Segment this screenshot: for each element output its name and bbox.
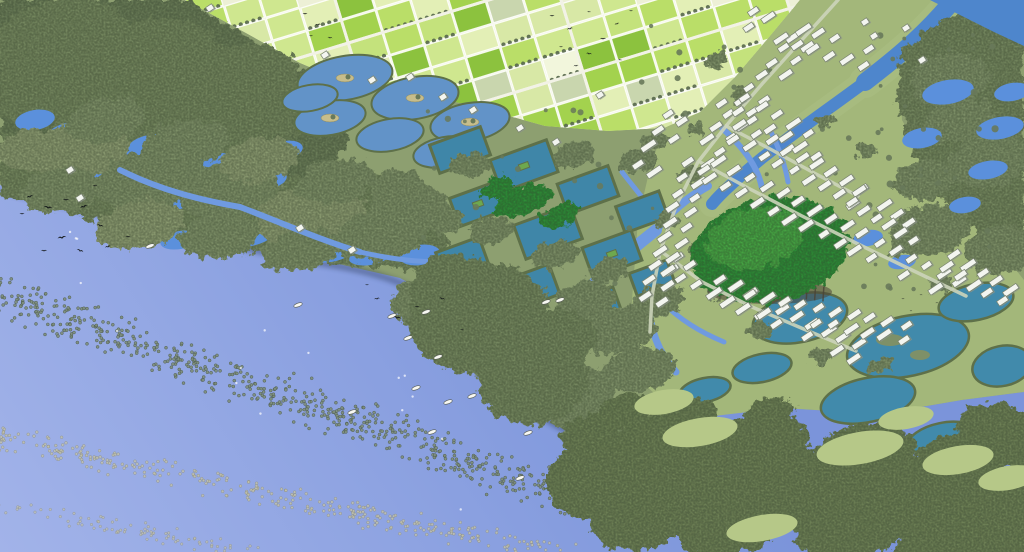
aquaculture-dot bbox=[458, 528, 461, 531]
aquaculture-dot bbox=[102, 339, 105, 342]
aquaculture-dot bbox=[231, 373, 234, 376]
aquaculture-dot bbox=[511, 483, 514, 486]
aquaculture-dot bbox=[2, 304, 5, 307]
aquaculture-dot bbox=[364, 513, 367, 516]
aquaculture-dot bbox=[27, 313, 30, 316]
aquaculture-dot bbox=[376, 405, 379, 408]
aquaculture-dot bbox=[114, 340, 117, 343]
aquaculture-dot bbox=[0, 277, 2, 280]
aquaculture-dot bbox=[398, 429, 401, 432]
aquaculture-dot bbox=[243, 375, 246, 378]
aquaculture-dot bbox=[539, 486, 542, 489]
aquaculture-dot bbox=[506, 490, 509, 493]
aquaculture-dot bbox=[205, 482, 208, 485]
aquaculture-dot bbox=[381, 510, 384, 513]
aquaculture-dot bbox=[79, 450, 82, 453]
aquaculture-dot bbox=[37, 287, 40, 290]
aquaculture-dot bbox=[369, 509, 372, 512]
aquaculture-dot bbox=[424, 431, 427, 434]
aquaculture-dot bbox=[320, 415, 323, 418]
aquaculture-dot bbox=[179, 473, 182, 476]
aquaculture-dot bbox=[417, 428, 420, 431]
aquaculture-dot bbox=[141, 465, 144, 468]
aquaculture-dot bbox=[41, 302, 44, 305]
aquaculture-dot bbox=[10, 319, 13, 322]
aquaculture-dot bbox=[320, 402, 323, 405]
aquaculture-dot bbox=[150, 531, 153, 534]
aquaculture-dot bbox=[65, 441, 68, 444]
aquaculture-dot bbox=[98, 449, 101, 452]
aquaculture-dot bbox=[106, 341, 109, 344]
aquaculture-dot bbox=[246, 496, 249, 499]
aquaculture-dot bbox=[93, 319, 96, 322]
sea-fleck bbox=[441, 438, 443, 440]
aquaculture-dot bbox=[471, 469, 474, 472]
aquaculture-dot bbox=[363, 416, 366, 419]
aquaculture-dot bbox=[308, 427, 311, 430]
aquaculture-dot bbox=[85, 454, 88, 457]
aquaculture-dot bbox=[116, 530, 119, 533]
aquaculture-dot bbox=[459, 521, 462, 524]
aquaculture-dot bbox=[206, 371, 209, 374]
aquaculture-dot bbox=[262, 391, 265, 394]
aquaculture-dot bbox=[367, 505, 370, 508]
aquaculture-dot bbox=[9, 438, 12, 441]
aquaculture-dot bbox=[350, 509, 353, 512]
aquaculture-dot bbox=[308, 512, 311, 515]
aquaculture-dot bbox=[431, 436, 434, 439]
aquaculture-dot bbox=[374, 421, 377, 424]
aquaculture-dot bbox=[341, 411, 344, 414]
pond-edge-tree bbox=[597, 183, 603, 189]
aquaculture-dot bbox=[77, 316, 80, 319]
aquaculture-dot bbox=[79, 456, 82, 459]
aquaculture-dot bbox=[182, 382, 185, 385]
aquaculture-dot bbox=[180, 543, 183, 546]
aquaculture-dot bbox=[365, 430, 368, 433]
aquaculture-dot bbox=[153, 528, 156, 531]
aquaculture-dot bbox=[61, 444, 64, 447]
aquaculture-dot bbox=[279, 411, 282, 414]
aquaculture-dot bbox=[356, 430, 359, 433]
aquaculture-dot bbox=[537, 543, 540, 546]
aquaculture-dot bbox=[453, 450, 456, 453]
meadow-tree bbox=[971, 33, 975, 37]
aquaculture-dot bbox=[461, 468, 464, 471]
aquaculture-dot bbox=[381, 421, 384, 424]
aquaculture-dot bbox=[68, 296, 71, 299]
aquaculture-dot bbox=[333, 513, 336, 516]
aquaculture-dot bbox=[485, 456, 488, 459]
aquaculture-dot bbox=[188, 538, 191, 541]
aquaculture-dot bbox=[216, 545, 219, 548]
aquaculture-dot bbox=[96, 345, 99, 348]
aquaculture-dot bbox=[86, 307, 89, 310]
aquaculture-dot bbox=[481, 477, 484, 480]
aquaculture-dot bbox=[158, 368, 161, 371]
aquaculture-dot bbox=[162, 469, 165, 472]
aquaculture-dot bbox=[305, 395, 308, 398]
aquaculture-dot bbox=[94, 306, 97, 309]
meadow-tree bbox=[919, 167, 924, 172]
aquaculture-dot bbox=[518, 487, 521, 490]
aquaculture-dot bbox=[25, 307, 28, 310]
aquaculture-dot bbox=[173, 349, 176, 352]
meadow-tree bbox=[880, 127, 884, 131]
aquaculture-dot bbox=[29, 306, 32, 309]
aquaculture-dot bbox=[147, 525, 150, 528]
aquaculture-dot bbox=[19, 305, 22, 308]
pond-island bbox=[406, 94, 424, 102]
aquaculture-dot bbox=[428, 523, 431, 526]
aquaculture-dot bbox=[477, 538, 480, 541]
aquaculture-dot bbox=[60, 332, 63, 335]
aquaculture-dot bbox=[434, 519, 437, 522]
aquaculture-dot bbox=[51, 330, 54, 333]
aquaculture-dot bbox=[486, 530, 489, 533]
aquaculture-dot bbox=[210, 371, 213, 374]
pond-edge-tree bbox=[432, 166, 437, 171]
aquaculture-dot bbox=[329, 505, 332, 508]
meadow-tree bbox=[737, 67, 743, 73]
aquaculture-dot bbox=[556, 544, 559, 547]
aquaculture-dot bbox=[323, 504, 326, 507]
aquaculture-dot bbox=[391, 517, 394, 520]
aquaculture-dot bbox=[303, 391, 306, 394]
aquaculture-dot bbox=[0, 284, 1, 287]
aquaculture-dot bbox=[327, 514, 330, 517]
aquaculture-dot bbox=[358, 516, 361, 519]
aquaculture-dot bbox=[384, 433, 387, 436]
aquaculture-dot bbox=[269, 397, 272, 400]
aquaculture-dot bbox=[270, 402, 273, 405]
meadow-tree bbox=[903, 104, 907, 108]
aquaculture-dot bbox=[391, 438, 394, 441]
aquaculture-dot bbox=[32, 287, 35, 290]
aquaculture-dot bbox=[294, 389, 297, 392]
aquaculture-dot bbox=[102, 458, 105, 461]
aquaculture-dot bbox=[313, 409, 316, 412]
aquaculture-dot bbox=[371, 430, 374, 433]
pond-edge-tree bbox=[421, 235, 426, 240]
aquaculture-dot bbox=[0, 441, 2, 444]
meadow-tree bbox=[992, 125, 999, 132]
aquaculture-dot bbox=[97, 520, 100, 523]
aquaculture-dot bbox=[82, 444, 85, 447]
pond-island-tree bbox=[331, 115, 336, 120]
aquaculture-dot bbox=[97, 470, 100, 473]
aquaculture-dot bbox=[280, 497, 283, 500]
aquaculture-dot bbox=[237, 366, 240, 369]
aquaculture-dot bbox=[138, 466, 141, 469]
aquaculture-dot bbox=[210, 545, 213, 548]
aquaculture-dot bbox=[193, 358, 196, 361]
aquaculture-dot bbox=[309, 498, 312, 501]
aquaculture-dot bbox=[475, 468, 478, 471]
aquaculture-dot bbox=[171, 363, 174, 366]
aquaculture-dot bbox=[501, 478, 504, 481]
aquaculture-dot bbox=[294, 494, 297, 497]
sea-fleck bbox=[460, 508, 462, 510]
aquaculture-dot bbox=[21, 301, 24, 304]
aquaculture-dot bbox=[246, 372, 249, 375]
aquaculture-dot bbox=[102, 320, 105, 323]
aquaculture-dot bbox=[93, 527, 96, 530]
aquaculture-dot bbox=[290, 401, 293, 404]
aquaculture-dot bbox=[354, 405, 357, 408]
aquaculture-dot bbox=[450, 466, 453, 469]
meadow-tree bbox=[874, 263, 878, 267]
aquaculture-dot bbox=[261, 487, 264, 490]
aquaculture-dot bbox=[202, 349, 205, 352]
aquaculture-dot bbox=[321, 393, 324, 396]
aquaculture-dot bbox=[174, 461, 177, 464]
aquaculture-dot bbox=[221, 490, 224, 493]
aquaculture-dot bbox=[177, 358, 180, 361]
meadow-tree bbox=[888, 286, 893, 291]
aquaculture-dot bbox=[362, 510, 365, 513]
aquaculture-dot bbox=[130, 354, 133, 357]
aquaculture-dot bbox=[261, 495, 264, 498]
aquaculture-dot bbox=[121, 463, 124, 466]
aquaculture-dot bbox=[415, 534, 418, 537]
aquaculture-dot bbox=[106, 459, 109, 462]
aquaculture-dot bbox=[5, 512, 8, 515]
meadow-tree bbox=[765, 172, 769, 176]
aquaculture-dot bbox=[225, 494, 228, 497]
sea-fleck bbox=[259, 412, 261, 414]
aquaculture-dot bbox=[169, 357, 172, 360]
aquaculture-dot bbox=[83, 319, 86, 322]
aquaculture-dot bbox=[120, 316, 123, 319]
aquaculture-dot bbox=[344, 431, 347, 434]
aquaculture-dot bbox=[361, 437, 364, 440]
aquaculture-dot bbox=[404, 435, 407, 438]
pond-island bbox=[321, 114, 339, 122]
meadow-tree bbox=[919, 173, 924, 178]
aquaculture-dot bbox=[263, 395, 266, 398]
aquaculture-dot bbox=[431, 523, 434, 526]
aquaculture-dot bbox=[280, 488, 283, 491]
aquaculture-dot bbox=[41, 455, 44, 458]
aquaculture-dot bbox=[82, 307, 85, 310]
aquaculture-dot bbox=[527, 465, 530, 468]
aquaculture-dot bbox=[205, 368, 208, 371]
aquaculture-dot bbox=[339, 512, 342, 515]
aquaculture-dot bbox=[133, 466, 136, 469]
aquaculture-dot bbox=[178, 372, 181, 375]
aquaculture-dot bbox=[212, 483, 215, 486]
aquaculture-dot bbox=[433, 444, 436, 447]
aquaculture-dot bbox=[59, 451, 62, 454]
aquaculture-dot bbox=[405, 529, 408, 532]
aquaculture-dot bbox=[258, 503, 261, 506]
aquaculture-dot bbox=[63, 298, 66, 301]
aquaculture-dot bbox=[453, 468, 456, 471]
aquaculture-dot bbox=[167, 473, 170, 476]
aquaculture-dot bbox=[156, 469, 159, 472]
aquaculture-dot bbox=[1, 446, 4, 449]
aquaculture-dot bbox=[475, 457, 478, 460]
aquaculture-dot bbox=[95, 330, 98, 333]
aquaculture-dot bbox=[208, 480, 211, 483]
aquaculture-dot bbox=[44, 333, 47, 336]
aquaculture-dot bbox=[501, 482, 504, 485]
aquaculture-dot bbox=[308, 400, 311, 403]
aquaculture-dot bbox=[50, 452, 53, 455]
aquaculture-dot bbox=[193, 353, 196, 356]
aquaculture-dot bbox=[182, 470, 185, 473]
aquaculture-dot bbox=[49, 508, 52, 511]
aquaculture-dot bbox=[277, 500, 280, 503]
sea-fleck bbox=[80, 282, 82, 284]
aquaculture-dot bbox=[324, 396, 327, 399]
aquaculture-dot bbox=[288, 377, 291, 380]
aquaculture-dot bbox=[328, 509, 331, 512]
aquaculture-dot bbox=[81, 524, 84, 527]
aquaculture-dot bbox=[53, 305, 56, 308]
aquaculture-dot bbox=[312, 414, 315, 417]
sea-fleck bbox=[263, 329, 265, 331]
aquaculture-dot bbox=[256, 397, 259, 400]
aquaculture-dot bbox=[305, 408, 308, 411]
aquaculture-dot bbox=[99, 525, 102, 528]
aquaculture-dot bbox=[54, 299, 57, 302]
aquaculture-dot bbox=[34, 511, 37, 514]
aquaculture-dot bbox=[155, 341, 158, 344]
aquaculture-dot bbox=[27, 433, 30, 436]
aquaculture-dot bbox=[291, 506, 294, 509]
aquaculture-dot bbox=[459, 441, 462, 444]
aquaculture-dot bbox=[250, 397, 253, 400]
aquaculture-dot bbox=[232, 385, 235, 388]
aquaculture-dot bbox=[103, 529, 106, 532]
aquaculture-dot bbox=[133, 337, 136, 340]
aquaculture-dot bbox=[242, 393, 245, 396]
aquaculture-dot bbox=[171, 465, 174, 468]
aquaculture-dot bbox=[333, 411, 336, 414]
aquaculture-dot bbox=[510, 455, 513, 458]
aquaculture-dot bbox=[176, 350, 179, 353]
sea-fleck bbox=[240, 367, 242, 369]
aquaculture-dot bbox=[146, 538, 149, 541]
aquaculture-dot bbox=[47, 437, 50, 440]
aquaculture-dot bbox=[420, 512, 423, 515]
aquaculture-dot bbox=[175, 360, 178, 363]
aquaculture-dot bbox=[119, 529, 122, 532]
aquaculture-dot bbox=[514, 536, 517, 539]
aquaculture-dot bbox=[204, 356, 207, 359]
pond-edge-tree bbox=[430, 255, 434, 259]
aquaculture-dot bbox=[323, 414, 326, 417]
aquaculture-dot bbox=[85, 465, 88, 468]
aquaculture-dot bbox=[434, 449, 437, 452]
aquaculture-dot bbox=[152, 463, 155, 466]
aquaculture-dot bbox=[315, 405, 318, 408]
aquaculture-dot bbox=[22, 441, 25, 444]
aquaculture-dot bbox=[291, 493, 294, 496]
pond-edge-tree bbox=[577, 109, 583, 115]
aquaculture-dot bbox=[542, 487, 545, 490]
meadow-tree bbox=[989, 44, 995, 50]
aquaculture-dot bbox=[391, 429, 394, 432]
aquaculture-dot bbox=[15, 298, 18, 301]
aquaculture-dot bbox=[56, 316, 59, 319]
aquaculture-dot bbox=[140, 344, 143, 347]
aquaculture-dot bbox=[305, 492, 308, 495]
aquaculture-dot bbox=[373, 411, 376, 414]
aquaculture-dot bbox=[241, 380, 244, 383]
aquaculture-dot bbox=[153, 346, 156, 349]
aquaculture-dot bbox=[144, 346, 147, 349]
aquaculture-dot bbox=[150, 534, 153, 537]
aquaculture-dot bbox=[216, 479, 219, 482]
aquaculture-dot bbox=[394, 431, 397, 434]
aquaculture-dot bbox=[506, 549, 509, 552]
aquaculture-dot bbox=[455, 458, 458, 461]
aquaculture-dot bbox=[86, 342, 89, 345]
aquaculture-dot bbox=[353, 423, 356, 426]
aquaculture-dot bbox=[274, 387, 277, 390]
aquaculture-dot bbox=[249, 545, 252, 548]
aquaculture-dot bbox=[397, 413, 400, 416]
aquaculture-dot bbox=[401, 456, 404, 459]
aquaculture-dot bbox=[291, 397, 294, 400]
aquaculture-dot bbox=[483, 468, 486, 471]
aquaculture-dot bbox=[299, 408, 302, 411]
aquaculture-dot bbox=[126, 330, 129, 333]
aquaculture-dot bbox=[313, 510, 316, 513]
aquaculture-dot bbox=[35, 293, 38, 296]
aquaculture-dot bbox=[436, 437, 439, 440]
aquaculture-dot bbox=[284, 398, 287, 401]
aquaculture-dot bbox=[494, 466, 497, 469]
pond-island-tree bbox=[346, 75, 351, 80]
sea-fleck bbox=[404, 375, 406, 377]
aquaculture-dot bbox=[526, 496, 529, 499]
aquaculture-dot bbox=[0, 449, 1, 452]
aquaculture-dot bbox=[544, 549, 547, 552]
aquaculture-dot bbox=[509, 480, 512, 483]
pond-island-tree bbox=[471, 119, 476, 124]
meadow-tree bbox=[649, 24, 653, 28]
aquaculture-dot bbox=[155, 346, 158, 349]
aquaculture-dot bbox=[149, 467, 152, 470]
aquaculture-dot bbox=[41, 309, 44, 312]
aquaculture-dot bbox=[263, 379, 266, 382]
aquaculture-dot bbox=[339, 415, 342, 418]
aquaculture-dot bbox=[136, 347, 139, 350]
aquaculture-dot bbox=[93, 456, 96, 459]
aquaculture-dot bbox=[350, 421, 353, 424]
aquaculture-dot bbox=[79, 321, 82, 324]
aquaculture-dot bbox=[46, 516, 49, 519]
aquaculture-dot bbox=[385, 430, 388, 433]
aquaculture-dot bbox=[69, 323, 72, 326]
aquaculture-dot bbox=[324, 432, 327, 435]
aquaculture-dot bbox=[144, 522, 147, 525]
aquaculture-dot bbox=[134, 342, 137, 345]
aquaculture-dot bbox=[187, 361, 190, 364]
aquaculture-dot bbox=[246, 547, 249, 550]
aquaculture-dot bbox=[122, 351, 125, 354]
aquaculture-dot bbox=[73, 315, 76, 318]
aquaculture-dot bbox=[351, 512, 354, 515]
aquaculture-dot bbox=[321, 405, 324, 408]
aquaculture-dot bbox=[10, 295, 13, 298]
aquaculture-dot bbox=[306, 411, 309, 414]
aquaculture-dot bbox=[29, 294, 32, 297]
